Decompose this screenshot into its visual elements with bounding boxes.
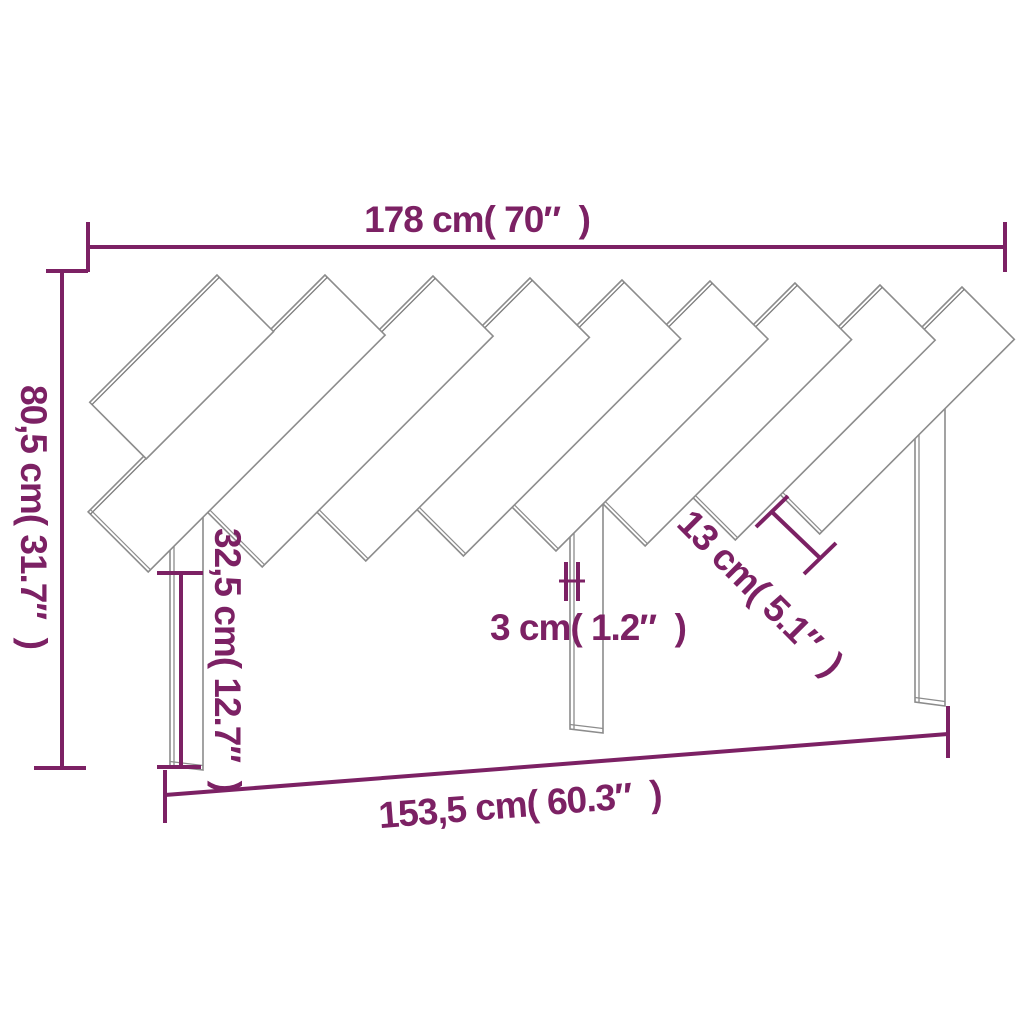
dimension-label-leg-thickness: 3 cm( 1.2″ ) — [490, 607, 686, 649]
dimension-label-leg-height: 32,5 cm( 12.7″ ) — [206, 528, 248, 792]
dimension-label-overall-width: 178 cm( 70″ ) — [364, 199, 590, 241]
diagram-canvas: 178 cm( 70″ ) 80,5 cm( 31.7″ ) 32,5 cm( … — [0, 0, 1024, 1024]
headboard-drawing — [0, 0, 1024, 1024]
dimension-label-overall-height: 80,5 cm( 31.7″ ) — [12, 385, 54, 649]
